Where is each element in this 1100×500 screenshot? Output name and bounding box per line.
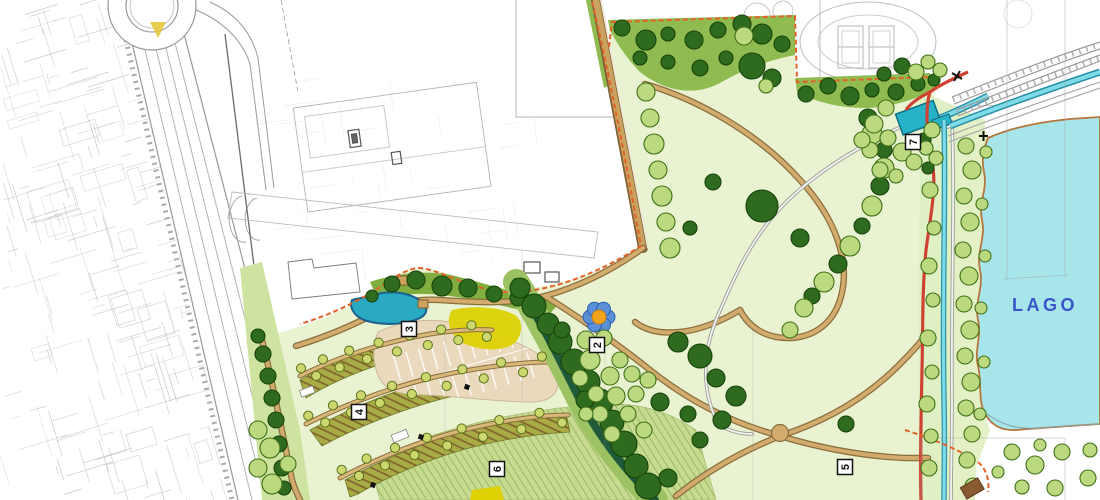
tree-icon	[407, 389, 416, 398]
tree-icon	[636, 30, 656, 50]
tree-icon	[685, 31, 703, 49]
marker-2: 2	[590, 338, 605, 353]
tree-icon	[296, 364, 305, 373]
tree-icon	[260, 368, 276, 384]
tree-icon	[959, 452, 975, 468]
tree-icon	[1047, 480, 1063, 496]
tree-icon	[607, 387, 625, 405]
marker-3: 3	[402, 322, 417, 337]
tree-icon	[707, 369, 725, 387]
tree-icon	[854, 132, 870, 148]
tree-icon	[304, 411, 313, 420]
marker-5: 5	[838, 460, 853, 475]
tree-icon	[356, 391, 365, 400]
tree-icon	[637, 83, 655, 101]
tree-icon	[680, 406, 696, 422]
tree-icon	[579, 407, 593, 421]
tree-icon	[908, 64, 924, 80]
tree-icon	[1026, 456, 1044, 474]
site-plan-svg: 2 3 4 5 6 7 LAGO	[0, 0, 1100, 500]
tree-icon	[635, 473, 661, 499]
tree-icon	[921, 258, 937, 274]
tree-icon	[458, 365, 467, 374]
tree-icon	[264, 390, 280, 406]
tree-icon	[922, 182, 938, 198]
tree-icon	[354, 471, 363, 480]
tree-icon	[978, 356, 990, 368]
tree-icon	[979, 250, 991, 262]
tree-icon	[362, 354, 371, 363]
tree-icon	[865, 83, 879, 97]
tree-icon	[782, 322, 798, 338]
tree-icon	[1004, 444, 1020, 460]
tree-icon	[486, 286, 502, 302]
lake-label: LAGO	[1012, 295, 1078, 315]
tree-icon	[798, 86, 814, 102]
tree-icon	[774, 36, 790, 52]
tree-icon	[1015, 480, 1029, 494]
tree-icon	[739, 53, 765, 79]
tree-icon	[624, 366, 640, 382]
tree-icon	[889, 169, 903, 183]
tree-icon	[955, 242, 971, 258]
tree-icon	[422, 433, 431, 442]
tree-icon	[927, 221, 941, 235]
tree-icon	[318, 355, 327, 364]
tree-icon	[337, 465, 346, 474]
tree-icon	[956, 188, 972, 204]
tree-icon	[1080, 470, 1096, 486]
tree-icon	[558, 418, 567, 427]
tree-icon	[962, 373, 980, 391]
tree-icon	[992, 466, 1004, 478]
tree-icon	[933, 63, 947, 77]
tree-icon	[961, 321, 979, 339]
tree-icon	[924, 122, 940, 138]
tree-icon	[628, 386, 644, 402]
tree-icon	[362, 454, 371, 463]
tree-icon	[459, 279, 477, 297]
tree-icon	[683, 221, 697, 235]
tree-icon	[877, 67, 891, 81]
tree-icon	[880, 130, 896, 146]
tree-icon	[759, 79, 773, 93]
tree-icon	[795, 299, 813, 317]
tree-icon	[572, 370, 588, 386]
tree-icon	[668, 332, 688, 352]
tree-icon	[454, 335, 463, 344]
tree-icon	[854, 218, 870, 234]
marker-7: 7	[906, 135, 921, 150]
tree-icon	[640, 372, 656, 388]
tree-icon	[457, 424, 466, 433]
marker-2-label: 2	[592, 342, 604, 348]
tree-icon	[964, 426, 980, 442]
tree-icon	[249, 459, 267, 477]
tree-icon	[262, 474, 282, 494]
tree-icon	[255, 346, 271, 362]
tree-icon	[335, 363, 344, 372]
tree-icon	[328, 401, 337, 410]
marker-3-label: 3	[404, 326, 416, 332]
tree-icon	[588, 386, 604, 402]
tree-icon	[249, 421, 267, 439]
tree-icon	[374, 338, 383, 347]
tree-icon	[641, 109, 659, 127]
tree-icon	[482, 332, 491, 341]
tree-icon	[604, 426, 620, 442]
tree-icon	[345, 346, 354, 355]
tree-icon	[442, 381, 451, 390]
tree-icon	[410, 451, 419, 460]
tree-icon	[251, 329, 265, 343]
marker-7-label: 7	[908, 139, 920, 145]
tree-icon	[443, 441, 452, 450]
marker-4-label: 4	[354, 408, 366, 415]
tree-icon	[838, 416, 854, 432]
tree-icon	[692, 432, 708, 448]
tree-icon	[1083, 443, 1097, 457]
tree-icon	[957, 348, 973, 364]
tree-icon	[659, 469, 677, 487]
tree-icon	[436, 325, 445, 334]
tree-icon	[387, 381, 396, 390]
tree-icon	[710, 22, 726, 38]
path-junction	[772, 425, 789, 442]
tree-icon	[390, 443, 399, 452]
tree-icon	[841, 87, 859, 105]
tree-icon	[375, 398, 384, 407]
tree-icon	[268, 412, 284, 428]
tree-icon	[960, 267, 978, 285]
tree-icon	[321, 418, 330, 427]
tree-icon	[919, 396, 935, 412]
tree-icon	[926, 293, 940, 307]
tree-icon	[752, 24, 772, 44]
tree-icon	[280, 456, 296, 472]
tree-icon	[958, 400, 974, 416]
tree-icon	[820, 78, 836, 94]
tree-icon	[840, 236, 860, 256]
tree-icon	[636, 422, 652, 438]
tree-icon	[888, 84, 904, 100]
tree-icon	[975, 302, 987, 314]
tree-icon	[872, 162, 888, 178]
tree-icon	[612, 352, 628, 368]
tree-icon	[661, 27, 675, 41]
tree-icon	[862, 196, 882, 216]
tree-icon	[312, 371, 321, 380]
tree-icon	[705, 174, 721, 190]
tree-icon	[921, 55, 935, 69]
tree-icon	[495, 416, 504, 425]
tree-icon	[614, 20, 630, 36]
tree-icon	[961, 213, 979, 231]
tree-icon	[366, 290, 378, 302]
tree-icon	[517, 425, 526, 434]
pond-deck	[418, 300, 428, 308]
tree-icon	[660, 238, 680, 258]
tree-icon	[688, 344, 712, 368]
tree-icon	[735, 27, 753, 45]
tree-icon	[878, 100, 894, 116]
site-plan-map: 2 3 4 5 6 7 LAGO	[0, 0, 1100, 500]
tree-icon	[423, 340, 432, 349]
tree-icon	[920, 330, 936, 346]
marker-6: 6	[490, 462, 505, 477]
tree-icon	[380, 461, 389, 470]
tree-icon	[537, 352, 546, 361]
tree-icon	[925, 365, 939, 379]
playground-flower	[583, 302, 615, 332]
tree-icon	[496, 358, 505, 367]
tree-icon	[649, 161, 667, 179]
marker-5-label: 5	[840, 464, 852, 470]
tree-icon	[652, 186, 672, 206]
tree-icon	[692, 60, 708, 76]
tree-icon	[467, 321, 476, 330]
tree-icon	[865, 115, 883, 133]
tree-icon	[980, 146, 992, 158]
tree-icon	[479, 374, 488, 383]
tree-icon	[620, 406, 636, 422]
tree-icon	[260, 438, 280, 458]
marker-4: 4	[352, 405, 367, 420]
lake	[977, 117, 1100, 430]
tree-icon	[510, 278, 530, 298]
tree-icon	[976, 198, 988, 210]
tree-icon	[719, 51, 733, 65]
tree-icon	[871, 177, 889, 195]
tree-icon	[814, 272, 834, 292]
tree-icon	[478, 432, 487, 441]
tree-icon	[963, 161, 981, 179]
tree-icon	[1054, 444, 1070, 460]
tree-icon	[518, 368, 527, 377]
tree-icon	[432, 276, 452, 296]
tree-icon	[906, 154, 922, 170]
tree-icon	[407, 271, 425, 289]
tree-icon	[633, 51, 647, 65]
tree-icon	[601, 367, 619, 385]
tree-icon	[421, 373, 430, 382]
tree-icon	[956, 296, 972, 312]
tree-icon	[974, 408, 986, 420]
tree-icon	[651, 393, 669, 411]
tree-icon	[921, 460, 937, 476]
tree-icon	[661, 55, 675, 69]
tree-icon	[726, 386, 746, 406]
tree-icon	[535, 408, 544, 417]
tree-icon	[392, 347, 401, 356]
tree-icon	[657, 213, 675, 231]
tree-icon	[713, 411, 731, 429]
tree-icon	[592, 406, 608, 422]
tree-icon	[1034, 439, 1046, 451]
tree-icon	[554, 322, 570, 338]
marker-6-label: 6	[492, 466, 504, 472]
tree-icon	[924, 429, 938, 443]
tree-icon	[829, 255, 847, 273]
tree-icon	[644, 134, 664, 154]
tree-icon	[958, 138, 974, 154]
tree-icon	[791, 229, 809, 247]
tree-icon	[384, 276, 400, 292]
tree-icon	[746, 190, 778, 222]
